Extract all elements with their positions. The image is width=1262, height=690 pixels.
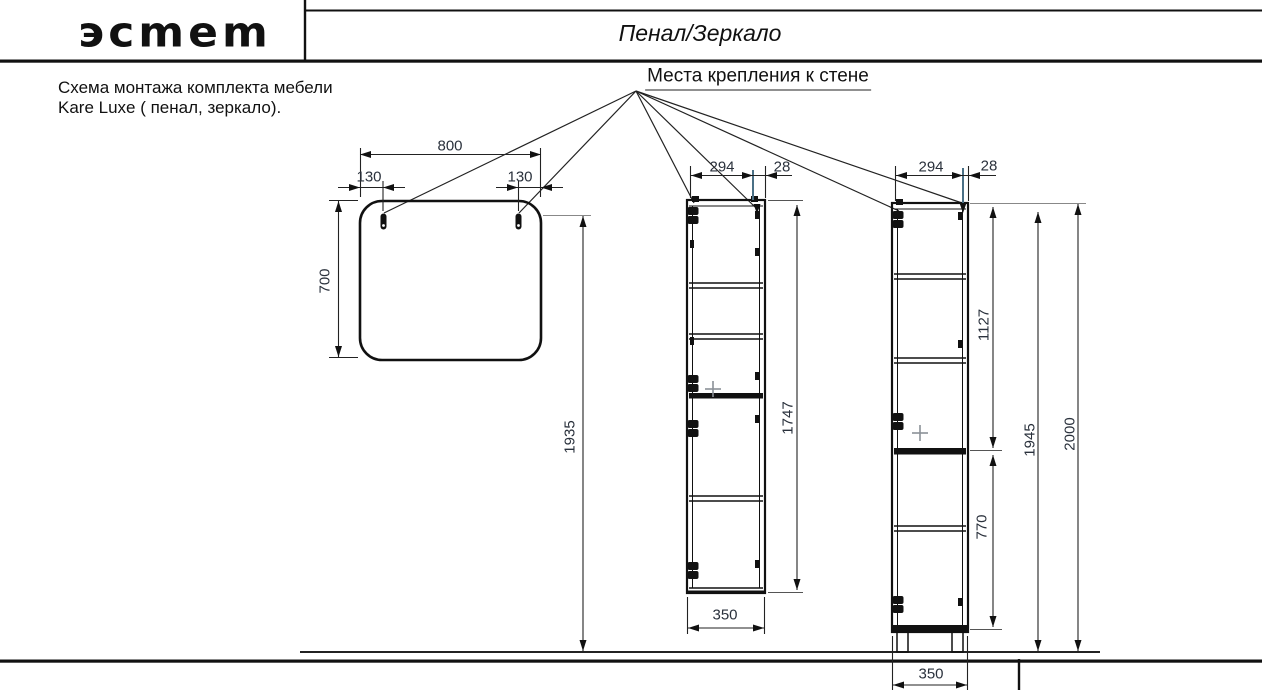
dim-mirror-width: 800 (437, 138, 462, 155)
dim-wall-cabinet-edge-gap: 28 (774, 159, 791, 176)
dim-floor-cabinet-lower-span: 770 (974, 514, 991, 539)
wall-mount-callout: Места крепления к стене (645, 66, 871, 91)
dim-mirror-height: 700 (317, 268, 334, 293)
floor-cabinet-hinge-icons (893, 199, 963, 613)
mirror-dimensions (329, 148, 591, 651)
dim-floor-cabinet-width: 350 (918, 666, 943, 683)
mounting-leader-lines (384, 91, 962, 213)
dim-floor-cabinet-mount-offset: 294 (918, 159, 943, 176)
floor-cabinet-dimensions (892, 166, 1086, 690)
note-line-2: Kare Luxe ( пенал, зеркало). (58, 98, 333, 118)
note-line-1: Схема монтажа комплекта мебели (58, 78, 333, 98)
wall-cabinet-hinge-icons (688, 196, 760, 579)
floor-lines (0, 652, 1262, 690)
dim-floor-cabinet-body-height: 1945 (1022, 423, 1039, 456)
drawing-sheet: эсmem Пенал/Зеркало Схема монтажа компле… (0, 0, 1262, 690)
dim-floor-cabinet-upper-span: 1127 (976, 309, 993, 341)
sheet-title: Пенал/Зеркало (305, 20, 1095, 47)
dim-mirror-mount-height: 1935 (562, 420, 579, 453)
wall-cabinet-drawing (687, 200, 765, 594)
wall-cabinet-dimensions (687, 166, 803, 634)
mirror-outline (360, 201, 541, 360)
mounting-note: Схема монтажа комплекта мебели Kare Luxe… (58, 78, 333, 118)
dim-wall-cabinet-depth: 350 (712, 607, 737, 624)
brand-logo: эсmem (52, 7, 298, 56)
dim-floor-cabinet-total-height: 2000 (1062, 417, 1079, 450)
dim-mirror-hole-offset-left: 130 (356, 169, 381, 186)
mirror-keyhole-icon (381, 214, 522, 230)
floor-cabinet-center-cross-icon (912, 425, 928, 441)
dim-wall-cabinet-body-height: 1747 (780, 401, 797, 434)
dim-wall-cabinet-mount-offset: 294 (709, 159, 734, 176)
dim-floor-cabinet-edge-gap: 28 (981, 158, 998, 175)
dim-mirror-hole-offset-right: 130 (507, 169, 532, 186)
